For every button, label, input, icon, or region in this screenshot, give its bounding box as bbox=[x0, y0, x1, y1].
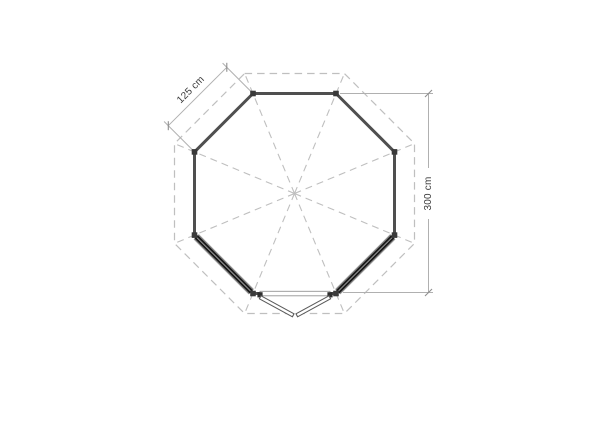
window-glass-line bbox=[339, 238, 393, 291]
dimension-label-125: 125 cm bbox=[175, 74, 207, 106]
window-glass-line bbox=[197, 238, 251, 291]
dimension-300: 300 cm bbox=[340, 90, 434, 296]
door-opening-frame bbox=[260, 291, 330, 296]
corner-post bbox=[333, 291, 339, 297]
wall-upper-right bbox=[336, 94, 395, 152]
double-door bbox=[257, 291, 332, 317]
corner-post bbox=[392, 149, 398, 155]
corner-post bbox=[333, 91, 339, 97]
corner-post bbox=[250, 291, 256, 297]
corner-post bbox=[250, 91, 256, 97]
floor-plan-canvas: 300 cm 125 cm bbox=[0, 0, 600, 424]
corner-post bbox=[192, 149, 198, 155]
roof-hip-lines bbox=[175, 74, 415, 314]
wall-upper-left bbox=[195, 94, 254, 152]
window-right bbox=[338, 237, 393, 292]
dimension-label-300: 300 cm bbox=[423, 177, 434, 211]
floor-plan-drawing: 300 cm 125 cm bbox=[0, 0, 600, 424]
window-left bbox=[196, 237, 251, 292]
corner-post bbox=[192, 232, 198, 238]
corner-post bbox=[392, 232, 398, 238]
